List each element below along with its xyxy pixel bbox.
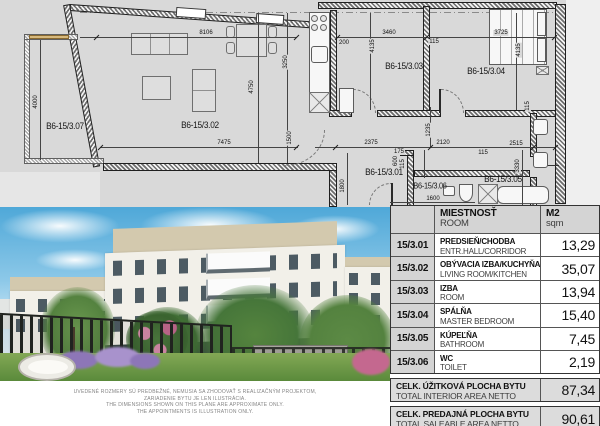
room-name-sk: KÚPEĽŇA xyxy=(440,331,540,341)
dim-label: 2120 xyxy=(435,140,450,146)
room-code: 15/3.06 xyxy=(391,351,435,373)
table-row: 15/3.04 SPÁLŇA MASTER BEDROOM 15,40 xyxy=(391,303,599,326)
dim-label: 8106 xyxy=(198,30,213,36)
room-code: 15/3.01 xyxy=(391,234,435,256)
window-row xyxy=(349,273,386,285)
wall xyxy=(377,110,441,117)
entrance-door-arc xyxy=(369,183,391,205)
room-name-en: ROOM xyxy=(440,293,540,303)
dim-label: 7475 xyxy=(216,140,231,146)
plan-margin xyxy=(0,172,100,207)
bathtub xyxy=(497,186,549,204)
dim-label: 4000 xyxy=(33,94,39,109)
dim-label: 4750 xyxy=(249,79,255,94)
balcony-wall xyxy=(24,158,104,164)
room-name: KÚPEĽŇA BATHROOM xyxy=(435,328,541,350)
room-area: 13,29 xyxy=(541,234,599,256)
kitchen-sink xyxy=(311,46,328,63)
room-area: 13,94 xyxy=(541,281,599,303)
daybed-cushion xyxy=(28,360,68,374)
header-area-en: sqm xyxy=(546,219,599,229)
room-area: 7,45 xyxy=(541,328,599,350)
chaise-sofa xyxy=(192,69,216,112)
table-row: 15/3.03 IZBA ROOM 13,94 xyxy=(391,280,599,303)
dimension-line xyxy=(347,153,348,205)
dim-label: 3725 xyxy=(493,30,508,36)
table-row: 15/3.06 WC TOILET 2,19 xyxy=(391,350,599,373)
dimension-line xyxy=(522,150,523,205)
total-name-en: TOTAL SALEABLE AREA NETTO xyxy=(396,420,540,426)
header-area-cell: M2 sqm xyxy=(541,206,599,233)
closet xyxy=(339,88,354,113)
room-name-en: ENTR.HALL/CORRIDOR xyxy=(440,247,540,257)
garden-daybed xyxy=(18,353,76,381)
wall xyxy=(318,2,557,9)
room-name: SPÁLŇA MASTER BEDROOM xyxy=(435,304,541,326)
dimension-line xyxy=(40,40,41,160)
dim-label: 115 xyxy=(477,150,489,156)
room-name-sk: IZBA xyxy=(440,284,540,294)
toilet xyxy=(459,184,473,202)
table-header-row: MIESTNOSŤ ROOM M2 sqm xyxy=(391,206,599,233)
wall xyxy=(329,170,337,207)
room-label-hall: B6-15/3.01 xyxy=(365,167,403,177)
building-photo xyxy=(0,207,390,381)
total-name-en: TOTAL INTERIOR AREA NETTO xyxy=(396,392,540,402)
dim-label: 2375 xyxy=(363,140,378,146)
room-name: WC TOILET xyxy=(435,351,541,373)
dim-label: 1500 xyxy=(287,130,293,145)
dimension-tick xyxy=(294,35,300,41)
floor-plan: 8106 4750 3250 1500 7475 4000 200 3460 1… xyxy=(0,0,600,207)
wall xyxy=(423,6,430,115)
dim-label: 3330 xyxy=(515,158,521,173)
room-name-sk: WC xyxy=(440,354,540,364)
total-area: 90,61 xyxy=(541,407,599,426)
table-row: 15/3.01 PREDSIEŇ/CHODBA ENTR.HALL/CORRID… xyxy=(391,233,599,256)
dim-label: 3250 xyxy=(283,54,289,69)
stove-burner xyxy=(311,24,318,31)
disclaimer-line: THE APPOINTMENTS IS ILLUSTRATION ONLY. xyxy=(0,409,390,416)
cloud xyxy=(0,209,120,243)
disclaimer: UVEDENÉ ROZMERY SÚ PREDBEŽNÉ, NEMUSIA SA… xyxy=(0,381,390,426)
header-room-en: ROOM xyxy=(440,219,540,229)
room-name-en: MASTER BEDROOM xyxy=(440,317,540,327)
washing-machine xyxy=(478,184,498,204)
dim-label: 3460 xyxy=(381,30,396,36)
stove-burner xyxy=(320,15,327,22)
nightstand xyxy=(536,66,549,75)
dimension-line xyxy=(390,202,475,203)
balcony-beam xyxy=(29,35,69,39)
pillow xyxy=(537,12,546,36)
door-arc xyxy=(441,89,464,113)
room-label-room: B6-15/3.03 xyxy=(385,61,423,71)
room-name-sk: OBÝVACIA IZBA/KUCHYŇA xyxy=(440,260,540,270)
total-name: CELK. ÚŽITKOVÁ PLOCHA BYTU TOTAL INTERIO… xyxy=(391,379,541,401)
washbasin xyxy=(533,119,548,135)
plan-sheet: 8106 4750 3250 1500 7475 4000 200 3460 1… xyxy=(0,0,600,426)
room-area: 2,19 xyxy=(541,351,599,373)
dimension-line xyxy=(424,150,425,178)
dim-label: 4135 xyxy=(516,42,522,57)
cloud xyxy=(35,249,115,271)
chair xyxy=(268,42,277,54)
room-name-en: LIVING ROOM/KITCHEN xyxy=(440,270,540,280)
dimension-line xyxy=(80,37,297,38)
header-room-cell: MIESTNOSŤ ROOM xyxy=(435,206,541,233)
stove-burner xyxy=(320,24,327,31)
dim-label: 1600 xyxy=(425,196,440,202)
room-area: 35,07 xyxy=(541,257,599,279)
balcony xyxy=(206,251,270,273)
wall xyxy=(465,110,556,117)
room-code: 15/3.04 xyxy=(391,304,435,326)
total-area: 87,34 xyxy=(541,379,599,401)
room-name-sk: SPÁLŇA xyxy=(440,307,540,317)
dimension-line xyxy=(100,147,298,148)
wall-angled xyxy=(63,4,100,168)
plan-margin xyxy=(566,0,600,207)
room-name: PREDSIEŇ/CHODBA ENTR.HALL/CORRIDOR xyxy=(435,234,541,256)
room-area: 15,40 xyxy=(541,304,599,326)
room-label-bath: B6-15/3.05 xyxy=(484,174,522,184)
dimension-line xyxy=(370,13,371,110)
dim-label: 200 xyxy=(338,40,350,46)
dim-label: 4135 xyxy=(370,38,376,53)
total-interior-row: CELK. ÚŽITKOVÁ PLOCHA BYTU TOTAL INTERIO… xyxy=(390,378,600,402)
wall xyxy=(407,150,414,207)
room-code: 15/3.03 xyxy=(391,281,435,303)
dim-label: 600 xyxy=(393,155,399,167)
dim-label: 115 xyxy=(428,39,440,45)
window xyxy=(176,7,207,19)
room-name-en: BATHROOM xyxy=(440,340,540,350)
stove-burner xyxy=(311,15,318,22)
room-name-en: TOILET xyxy=(440,363,540,373)
table-row: 15/3.05 KÚPEĽŇA BATHROOM 7,45 xyxy=(391,327,599,350)
dim-label: 1235 xyxy=(426,122,432,137)
balcony-wall xyxy=(24,34,30,164)
fridge xyxy=(309,92,330,113)
dining-table xyxy=(236,24,267,57)
lavender xyxy=(130,353,160,369)
dimension-line xyxy=(315,147,556,148)
room-code: 15/3.05 xyxy=(391,328,435,350)
area-table: MIESTNOSŤ ROOM M2 sqm 15/3.01 PREDSIEŇ/C… xyxy=(390,205,600,426)
room-label-balcony: B6-15/3.07 xyxy=(46,121,84,131)
room-name: IZBA ROOM xyxy=(435,281,541,303)
pillow xyxy=(537,38,546,62)
dimension-line xyxy=(516,13,517,110)
coffee-table xyxy=(142,76,171,100)
dimension-line xyxy=(258,13,259,163)
dim-label: 115 xyxy=(525,100,531,112)
total-name: CELK. PREDAJNÁ PLOCHA BYTU TOTAL SALEABL… xyxy=(391,407,541,426)
dim-label: 2515 xyxy=(508,141,523,147)
room-label-living: B6-15/3.02 xyxy=(181,120,219,130)
table-row: 15/3.02 OBÝVACIA IZBA/KUCHYŇA LIVING ROO… xyxy=(391,256,599,279)
wall-terrace xyxy=(103,163,337,171)
wall xyxy=(330,10,337,115)
pink-flowers xyxy=(352,349,390,375)
area-table-main: MIESTNOSŤ ROOM M2 sqm 15/3.01 PREDSIEŇ/C… xyxy=(390,205,600,374)
room-code: 15/3.02 xyxy=(391,257,435,279)
header-code-cell xyxy=(391,206,435,233)
dim-label: 1800 xyxy=(340,178,346,193)
washbasin xyxy=(533,152,548,168)
room-name: OBÝVACIA IZBA/KUCHYŇA LIVING ROOM/KITCHE… xyxy=(435,257,541,279)
chair xyxy=(226,42,235,54)
room-name-sk: PREDSIEŇ/CHODBA xyxy=(440,237,540,247)
total-saleable-row: CELK. PREDAJNÁ PLOCHA BYTU TOTAL SALEABL… xyxy=(390,406,600,426)
door-arc xyxy=(353,89,376,113)
room-label-wc: B6-15/3.06 xyxy=(413,182,446,191)
room-label-bedroom: B6-15/3.04 xyxy=(467,66,505,76)
